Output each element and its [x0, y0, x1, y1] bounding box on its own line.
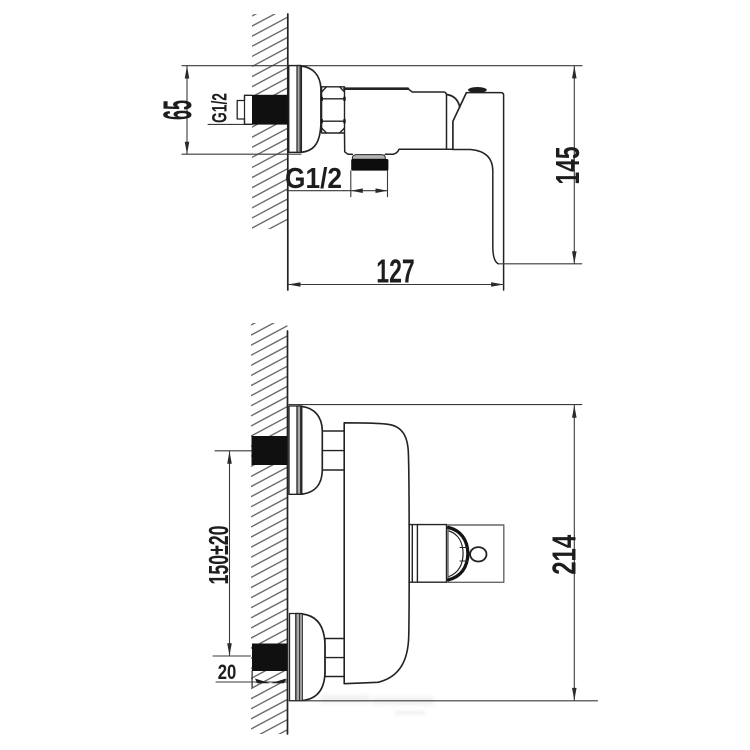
svg-text:214: 214	[547, 535, 584, 575]
svg-text:127: 127	[376, 253, 415, 290]
svg-text:150±20: 150±20	[203, 526, 234, 585]
svg-text:65: 65	[156, 100, 200, 120]
svg-text:G1/2: G1/2	[208, 93, 231, 123]
svg-text:20: 20	[218, 660, 237, 684]
svg-text:145: 145	[549, 147, 586, 185]
